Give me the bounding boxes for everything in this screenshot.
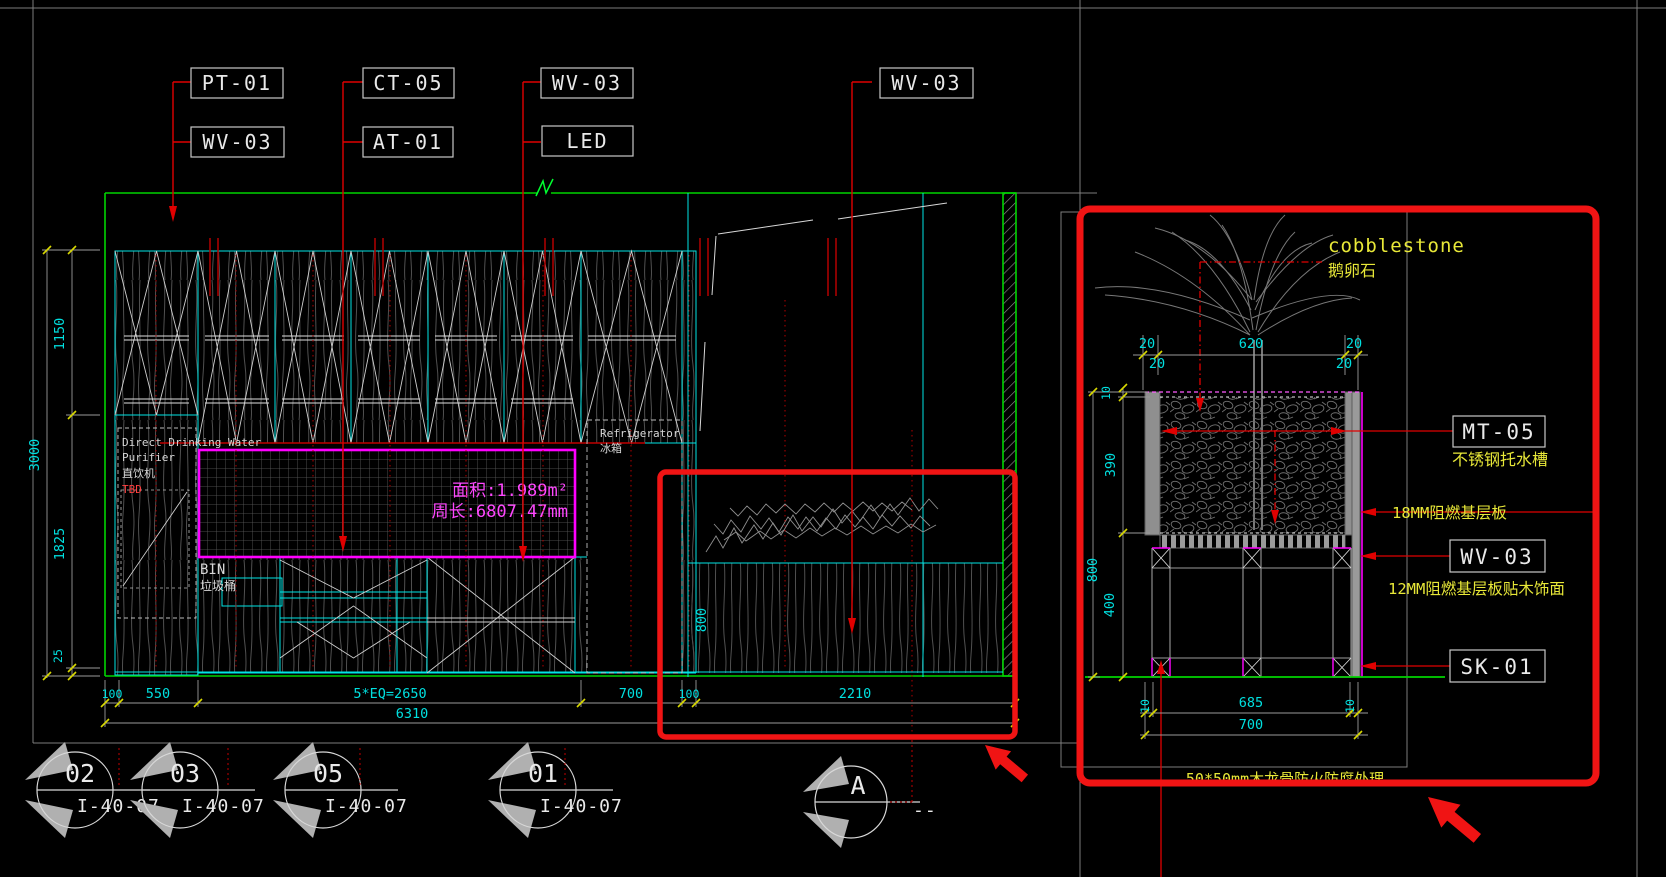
board-18mm [1352, 392, 1360, 677]
marker-05-no: 05 [313, 759, 343, 788]
dim-eq: 5*EQ=2650 [353, 686, 426, 702]
detail-highlight-arrow [1418, 786, 1487, 850]
tag-wv03-1: WV-03 [202, 130, 272, 154]
dim-800-bed: 800 [694, 608, 710, 632]
cad-canvas[interactable]: 面积:1.989m² 周长:6807.47mm Direct Drinking … [0, 0, 1666, 877]
purifier-line3: 直饮机 [122, 466, 155, 480]
purifier-line2: Purifier [122, 451, 175, 464]
sk01-label: SK-01 [1460, 655, 1533, 679]
mirror-lines [700, 203, 947, 431]
marker-03-sheet: I-40-07 [182, 796, 265, 817]
marker-05-sheet: I-40-07 [325, 796, 408, 817]
tag-ct05: CT-05 [373, 71, 443, 95]
ddim-390: 390 [1103, 453, 1119, 477]
wv03-desc: 12MM阻燃基层板贴木饰面 [1388, 580, 1565, 598]
ddim-400: 400 [1102, 593, 1118, 617]
ddim-20d: 20 [1336, 356, 1352, 372]
ddim-20c: 20 [1149, 356, 1165, 372]
fridge-line2: 冰箱 [600, 441, 622, 455]
detail-callouts: cobblestone 鹅卵石 MT-05 不锈钢托水槽 18MM阻燃基层板 W… [1328, 235, 1565, 682]
wv03-label: WV-03 [1460, 545, 1533, 569]
drain-slats [1160, 535, 1345, 548]
board18-note: 18MM阻燃基层板 [1392, 504, 1507, 522]
elevation-highlight-arrow [977, 736, 1032, 788]
elevation-drawing: 面积:1.989m² 周长:6807.47mm Direct Drinking … [25, 68, 1033, 848]
marker-01-no: 01 [528, 759, 558, 788]
tag-wv03-3: WV-03 [891, 71, 961, 95]
counter-region: 面积:1.989m² 周长:6807.47mm [160, 443, 645, 557]
dim-550: 550 [146, 686, 170, 702]
tag-wv03-2: WV-03 [552, 71, 622, 95]
dim-1150: 1150 [52, 318, 68, 351]
marker-03-no: 03 [170, 759, 200, 788]
marker-05: 05 I-40-07 [273, 742, 408, 838]
ddim-10a: 10 [1138, 699, 1152, 713]
dim-1825: 1825 [52, 528, 68, 561]
cad-drawing: 面积:1.989m² 周长:6807.47mm Direct Drinking … [0, 0, 1666, 877]
purifier-line1: Direct Drinking Water [122, 436, 261, 449]
fridge-line1: Refrigerator [600, 427, 680, 440]
bin-line1: BIN [200, 562, 225, 578]
ddim-700: 700 [1239, 717, 1263, 733]
cobblestone-cn: 鹅卵石 [1328, 261, 1376, 280]
plant-bed [706, 498, 938, 552]
marker-A: A -- [803, 756, 937, 848]
marker-A-no: A [850, 771, 865, 800]
cobble-fill [1160, 397, 1345, 533]
dim-horizontal: 100 550 5*EQ=2650 700 100 2210 6310 [101, 680, 1019, 727]
ddim-620: 620 [1239, 336, 1263, 352]
dim-700: 700 [619, 686, 643, 702]
dim-100a: 100 [102, 687, 123, 701]
marker-02: 02 I-40-07 [25, 742, 160, 838]
ddim-685: 685 [1239, 695, 1263, 711]
dim-6310: 6310 [396, 706, 429, 722]
mt05-desc: 不锈钢托水槽 [1452, 450, 1548, 469]
detail-markers: 02 I-40-07 03 I-40-07 05 I-40-07 [25, 737, 937, 848]
marker-03: 03 I-40-07 [130, 742, 265, 838]
marker-A-sheet: -- [913, 800, 937, 821]
bin-line2: 垃圾桶 [200, 578, 236, 593]
ddim-20a: 20 [1139, 336, 1155, 352]
dim-25: 25 [51, 649, 65, 663]
ddim-10b: 10 [1343, 699, 1357, 713]
marker-01: 01 I-40-07 [488, 742, 623, 838]
ddim-20b: 20 [1346, 336, 1362, 352]
marker-01-sheet: I-40-07 [540, 796, 623, 817]
dim-2210: 2210 [839, 686, 872, 702]
planter-section [1085, 392, 1445, 677]
purifier-tbd: TBD [122, 483, 142, 496]
tag-at01: AT-01 [373, 130, 443, 154]
cobblestone-en: cobblestone [1328, 235, 1465, 257]
counter-perimeter-text: 周长:6807.47mm [432, 502, 568, 522]
detail-drawing: 50*50mm木龙骨防火防腐处理 cobblestone 鹅卵石 MT-05 不… [1080, 209, 1596, 877]
mt05-label: MT-05 [1462, 420, 1535, 444]
tag-pt01: PT-01 [202, 71, 272, 95]
ddim-10t: 10 [1099, 386, 1113, 400]
tag-led: LED [566, 129, 608, 153]
dim-3000: 3000 [27, 439, 43, 472]
dim-100b: 100 [679, 687, 700, 701]
marker-02-no: 02 [65, 759, 95, 788]
ddim-800: 800 [1085, 558, 1101, 582]
refrigerator: Refrigerator 冰箱 [587, 420, 682, 673]
counter-area-text: 面积:1.989m² [452, 481, 568, 501]
